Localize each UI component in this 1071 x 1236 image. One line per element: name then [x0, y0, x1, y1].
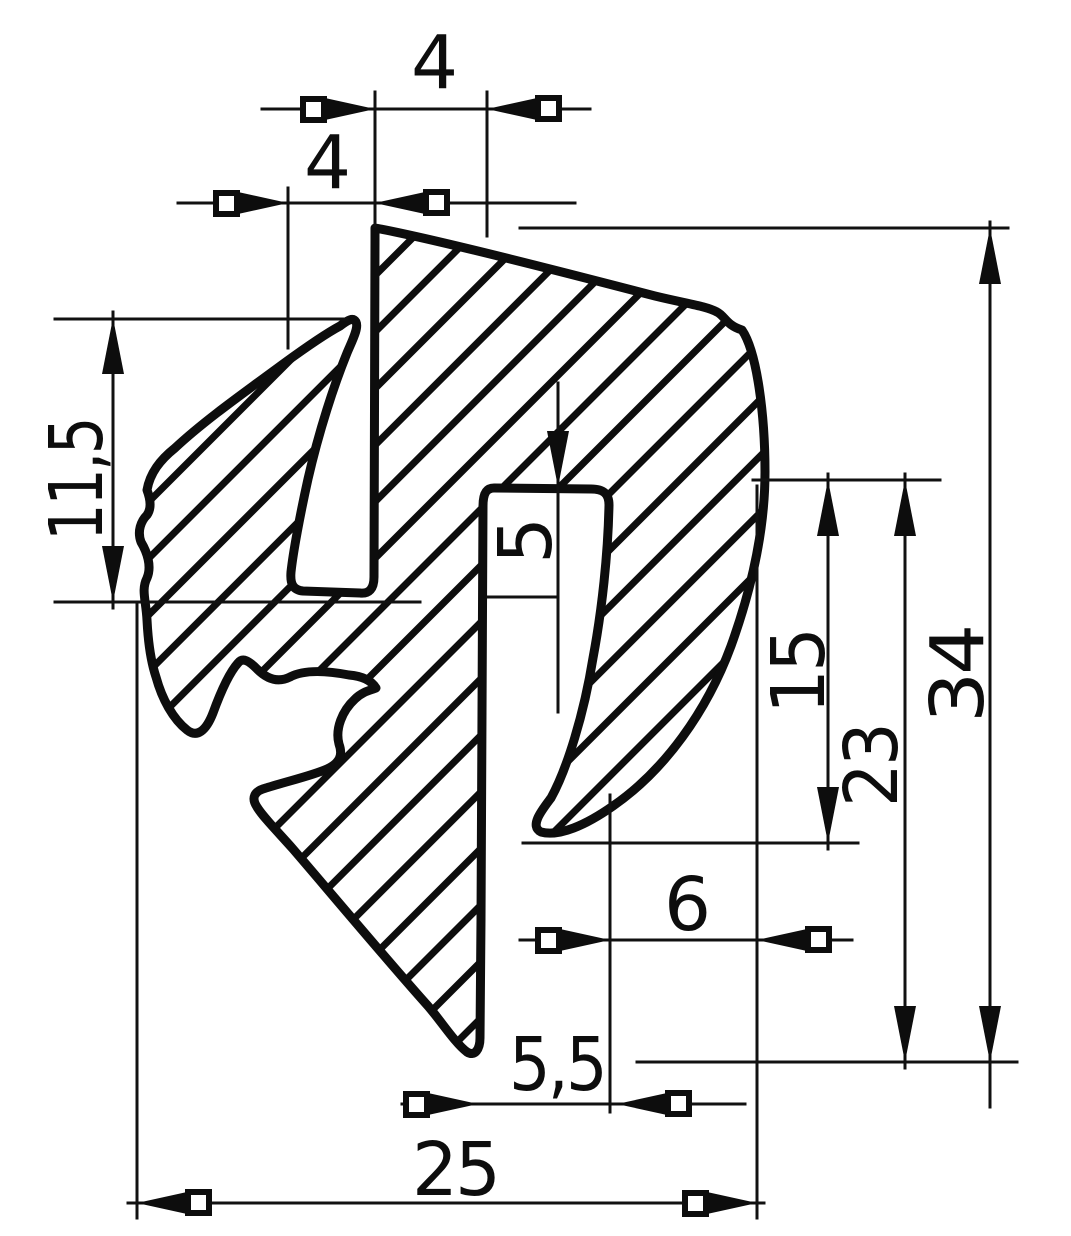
dim-label: 25	[412, 1127, 498, 1213]
arrowhead-left-icon	[375, 192, 447, 214]
arrowhead-left-icon	[137, 1192, 209, 1214]
drawing-sheet: 4 4 11,5 5 15 23 34	[0, 0, 1071, 1236]
dim-label: 15	[756, 630, 842, 714]
arrowhead-up-icon	[894, 480, 916, 536]
arrowhead-right-icon	[303, 98, 375, 120]
dim-label: 5	[483, 520, 569, 564]
dim-overall-width: 25	[128, 1127, 764, 1214]
arrowhead-right-icon	[538, 929, 610, 951]
arrowhead-right-icon	[216, 192, 288, 214]
arrowhead-down-icon	[979, 1006, 1001, 1062]
arrowhead-up-icon	[102, 318, 124, 374]
dim-label: 6	[664, 862, 708, 948]
dim-label: 34	[915, 627, 1001, 723]
arrowhead-left-icon	[487, 98, 559, 120]
dim-channel-height: 23	[829, 474, 916, 1068]
dim-tongue-clearance: 6	[520, 862, 852, 951]
arrowhead-down-icon	[894, 1006, 916, 1062]
dim-lip-height: 11,5	[34, 312, 124, 608]
dim-label: 5,5	[509, 1022, 605, 1108]
dim-overall-height: 34	[915, 222, 1001, 1107]
arrowhead-right-icon	[406, 1093, 478, 1115]
arrowhead-left-icon	[617, 1093, 689, 1115]
arrowhead-down-icon	[102, 546, 124, 602]
drawing-canvas: 4 4 11,5 5 15 23 34	[0, 0, 1071, 1236]
arrowhead-right-icon	[685, 1192, 757, 1214]
arrowhead-left-icon	[757, 929, 829, 951]
arrowhead-up-icon	[979, 228, 1001, 284]
dim-top-wall-width: 4	[262, 20, 590, 120]
dim-label: 11,5	[34, 419, 120, 541]
arrowhead-up-icon	[817, 480, 839, 536]
dim-label: 4	[411, 20, 455, 106]
dim-label: 4	[304, 120, 348, 206]
dim-label: 23	[829, 725, 915, 807]
